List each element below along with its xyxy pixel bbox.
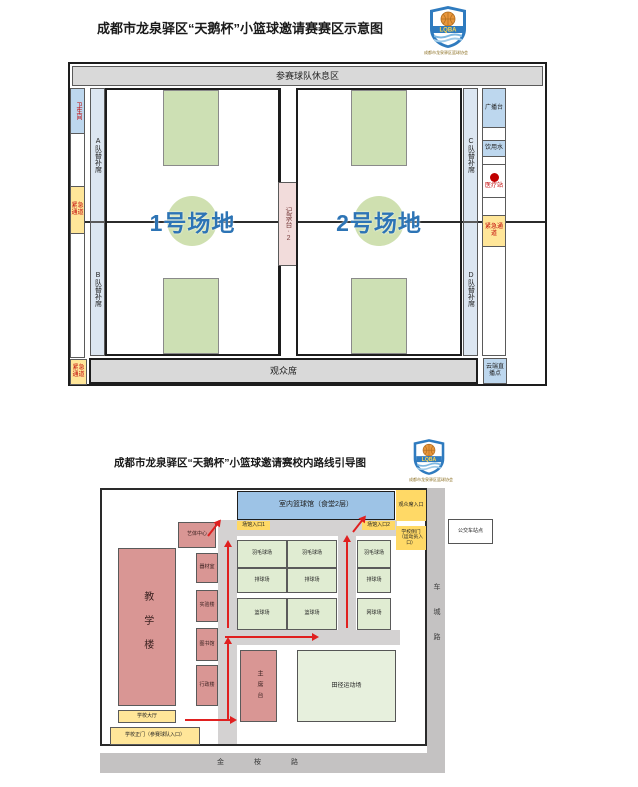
emergency-exit-bottom-left: 紧急通道 bbox=[70, 359, 87, 385]
medical-station-label: 医疗站 bbox=[485, 183, 503, 190]
logo-caption-2: 成都市龙泉驿区篮球协会 bbox=[409, 477, 453, 483]
road-south: 金桉路 bbox=[100, 753, 445, 773]
court-cell: 羽毛球场 bbox=[287, 540, 337, 568]
rostrum: 主席台 bbox=[240, 650, 277, 722]
athletics-field: 田径运动场 bbox=[297, 650, 396, 722]
library: 图书馆 bbox=[196, 628, 218, 661]
court-2-key-top bbox=[351, 90, 407, 166]
route-arrow-icon bbox=[227, 546, 229, 628]
lqba-logo: LQBA bbox=[428, 5, 468, 49]
emergency-exit-right: 紧急通道 bbox=[482, 215, 506, 247]
road-east: 车城路 bbox=[427, 488, 445, 753]
court-cell: 羽毛球场 bbox=[237, 540, 287, 568]
route-arrow-icon bbox=[227, 643, 229, 721]
gym-entrance-2: 场馆入口2 bbox=[362, 521, 395, 530]
bench-team-d: D队替补席 bbox=[463, 222, 478, 356]
bench-team-b: B队替补席 bbox=[90, 222, 105, 356]
court-cell: 排球场 bbox=[287, 568, 337, 593]
route-arrow-icon bbox=[225, 636, 313, 638]
recorder-desk: 记录台·2 bbox=[278, 182, 298, 266]
school-hall: 学校大厅 bbox=[118, 710, 176, 723]
court-cell: 篮球场 bbox=[237, 598, 287, 630]
logo-shield-icon: LQBA bbox=[412, 438, 446, 476]
medical-station: 医疗站 bbox=[482, 164, 506, 198]
broadcast-desk: 广播台 bbox=[482, 88, 506, 128]
court-1-key-top bbox=[163, 90, 219, 166]
toilet-box: 卫生间 bbox=[70, 88, 85, 134]
court-cell: 排球场 bbox=[237, 568, 287, 593]
page: 成都市龙泉驿区“天鹅杯”小篮球邀请赛赛区示意图 LQBA 成都市龙泉驿区篮球协会… bbox=[0, 0, 638, 787]
court-1-key-bottom bbox=[163, 278, 219, 354]
route-arrow-icon bbox=[346, 541, 348, 628]
lqba-logo-2: LQBA bbox=[412, 438, 446, 476]
gym-entrance-1: 场馆入口1 bbox=[237, 521, 270, 530]
court-2-label: 2号场地 bbox=[296, 206, 462, 236]
admin-building: 行政楼 bbox=[196, 665, 218, 706]
logo-shield-icon: LQBA bbox=[428, 5, 468, 49]
medical-dot-icon bbox=[490, 173, 499, 182]
bench-team-a: A队替补席 bbox=[90, 88, 105, 222]
audience-entrance: 观众席入口 bbox=[396, 490, 426, 521]
route-arrow-icon bbox=[185, 719, 231, 721]
indoor-gym: 室内篮球馆（食堂2层） bbox=[237, 491, 395, 520]
court-2-key-bottom bbox=[351, 278, 407, 354]
lab-building: 实验楼 bbox=[196, 590, 218, 622]
top-diagram-title: 成都市龙泉驿区“天鹅杯”小篮球邀请赛赛区示意图 bbox=[40, 18, 440, 37]
audience-stand: 观众席 bbox=[89, 358, 478, 384]
teaching-building: 教学楼 bbox=[118, 548, 176, 706]
court-1-label: 1号场地 bbox=[105, 206, 280, 236]
svg-text:LQBA: LQBA bbox=[440, 28, 458, 34]
svg-text:LQBA: LQBA bbox=[422, 457, 437, 463]
school-main-gate: 学校正门（参赛球队入口） bbox=[110, 727, 200, 745]
live-stream-point: 云端直播点 bbox=[483, 358, 507, 384]
bus-stop-box: 公交车站点 bbox=[448, 519, 493, 544]
school-side-gate: 学校侧门（运动员入口） bbox=[396, 526, 426, 550]
court-cell: 排球场 bbox=[357, 568, 391, 593]
emergency-exit-left: 紧急通道 bbox=[70, 186, 85, 234]
court-cell: 篮球场 bbox=[287, 598, 337, 630]
art-center: 艺体中心 bbox=[178, 522, 216, 548]
logo-caption: 成都市龙泉驿区篮球协会 bbox=[424, 50, 468, 56]
bottom-diagram-title: 成都市龙泉驿区“天鹅杯”小篮球邀请赛校内路线引导图 bbox=[60, 455, 420, 470]
bench-team-c: C队替补席 bbox=[463, 88, 478, 222]
court-cell: 网球场 bbox=[357, 598, 391, 630]
team-rest-area-bar: 参赛球队休息区 bbox=[72, 66, 543, 86]
drinking-water: 饮用水 bbox=[482, 140, 506, 157]
equipment-room: 器材室 bbox=[196, 553, 218, 583]
court-cell: 羽毛球场 bbox=[357, 540, 391, 568]
